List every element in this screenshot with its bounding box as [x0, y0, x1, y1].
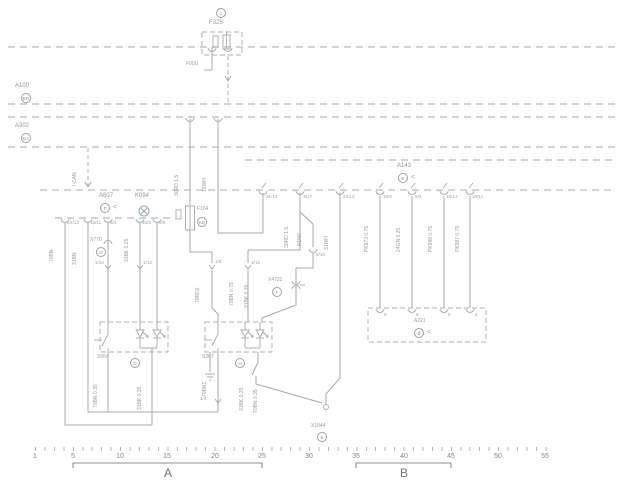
- pin-label: 6X/13: [67, 220, 79, 225]
- s267-label: S267: [202, 354, 214, 360]
- a221-badge: B: [414, 328, 424, 338]
- wire-label: 31BK 0.25: [124, 239, 131, 262]
- x1844-badge: B: [317, 432, 327, 442]
- ruler-number: 50: [494, 453, 502, 460]
- component-boxes: [100, 32, 486, 352]
- pin-label: 15/8: [383, 194, 392, 199]
- pin-label: 9: [416, 312, 419, 317]
- ruler-number: 25: [258, 453, 266, 460]
- a302-badge: BA: [21, 133, 31, 143]
- f325-badge: 1: [216, 8, 226, 18]
- k094-connector-icon: [139, 206, 149, 216]
- pin-label: 5/10: [316, 252, 325, 257]
- f325-symbol: [213, 31, 230, 49]
- x770-label: X770: [90, 237, 102, 243]
- x4722-badge: F: [272, 287, 282, 297]
- wire-label: PK973 0.75: [364, 226, 371, 252]
- ground-icon: [205, 374, 215, 380]
- pin-label: 15/11: [90, 220, 101, 225]
- pin-label: 1/10: [95, 260, 104, 265]
- x4722-label: X4722: [268, 277, 282, 283]
- pin-label: 10/11: [472, 194, 483, 199]
- pin-label: 23/12: [343, 194, 355, 199]
- a100-badge: BR: [21, 93, 31, 103]
- section-a-label: A: [164, 466, 172, 480]
- wire-label: 30RD 1.5: [284, 227, 291, 248]
- f164-badge: KB: [197, 217, 207, 227]
- ruler-number: 30: [305, 453, 313, 460]
- pointer-icon: <: [411, 174, 415, 181]
- a607-badge: F: [100, 203, 110, 213]
- wire-label: 31WH: [324, 236, 331, 250]
- wire-label: 31BK 0.35: [244, 285, 251, 308]
- s954-box: [100, 322, 168, 352]
- pin-label: 6/1: [110, 220, 116, 225]
- wire-label: 31BN: [72, 252, 79, 265]
- ruler-ticks: [35, 447, 550, 451]
- wire-label: 70BN: [49, 249, 56, 262]
- s267-internals: [204, 322, 268, 352]
- f164-fuse-symbol: [176, 206, 195, 230]
- wiring-diagram-page: 1 F325 F90U A100 BR A302 BA I-CAN A607 F…: [0, 0, 624, 488]
- wire-label: 24GN 0.25: [396, 228, 403, 252]
- k094-label: K094: [135, 193, 149, 200]
- wire-label: 31BK 0.35: [239, 388, 246, 411]
- a607-label: A607: [99, 193, 113, 200]
- ruler-number: 10: [116, 453, 124, 460]
- a302-label: A302: [15, 123, 29, 130]
- wire-label: PK988 0.75: [428, 226, 435, 252]
- s954-internals: [94, 322, 165, 352]
- wire-label: 30RD 1.5: [174, 175, 181, 196]
- s267-badge: H: [235, 358, 245, 368]
- wire-label: 70BN 0.35: [93, 384, 100, 408]
- x4722-connector-icon: [292, 281, 305, 289]
- pointer-icon: <: [427, 329, 431, 336]
- ruler-number: 55: [541, 453, 549, 460]
- arrow-glyphs: [85, 76, 251, 403]
- wire-label: 70BN 0.35: [253, 389, 260, 413]
- pointer-icon: <: [113, 204, 117, 211]
- pin-label: 1/8: [215, 259, 221, 264]
- ruler-number: 45: [447, 453, 455, 460]
- pin-label: 31/18: [266, 194, 278, 199]
- f164-label: F164: [197, 206, 208, 212]
- ican-label: I-CAN: [72, 172, 79, 186]
- a100-label: A100: [15, 83, 29, 90]
- pin-label: 1/4: [200, 396, 206, 401]
- x1844-connector-icon: [324, 405, 329, 410]
- pin-label: 6/5: [159, 220, 165, 225]
- a221-label: A221: [414, 318, 426, 324]
- wire-label: PK987 0.75: [455, 226, 462, 252]
- s954-label: S954: [97, 354, 109, 360]
- pin-label: 5: [448, 312, 451, 317]
- wire-label: 31BK 0.35: [137, 387, 144, 410]
- section-brackets: [73, 463, 451, 468]
- ruler-number: 15: [163, 453, 171, 460]
- ruler-number: 1: [33, 453, 37, 460]
- dashed-wires: [88, 56, 228, 187]
- ruler-number: 5: [71, 453, 75, 460]
- schematic-canvas: [0, 0, 624, 488]
- s954-badge: D: [130, 358, 140, 368]
- ruler-number: 20: [211, 453, 219, 460]
- wire-label: 16WH: [202, 178, 209, 192]
- pin-label: 8/4: [415, 194, 421, 199]
- f325-box: [202, 32, 242, 55]
- f325-label: F325: [209, 20, 223, 27]
- section-b-label: B: [400, 466, 408, 480]
- x1844-label: X1844: [311, 423, 325, 429]
- wire-label: 70BN1: [202, 382, 209, 397]
- pin-label: 1/12: [143, 260, 152, 265]
- pin-label: 4: [475, 312, 478, 317]
- a143-badge: E: [398, 173, 408, 183]
- s267-box: [205, 322, 272, 352]
- pin-label: 31/7: [303, 194, 312, 199]
- pin-label: 8: [384, 312, 387, 317]
- pin-label: 15/3: [142, 220, 151, 225]
- wire-label: RD90: [297, 233, 304, 246]
- pin-label: 10/13: [446, 194, 458, 199]
- ruler-number: 35: [352, 453, 360, 460]
- x770-badge: D: [96, 247, 106, 257]
- ruler-number: 40: [400, 453, 408, 460]
- f90u-label: F90U: [186, 61, 198, 67]
- wire-label: 70BN 0.75: [229, 282, 236, 306]
- pin-label: 1/12: [251, 260, 260, 265]
- wire-label: 70RD2: [195, 287, 202, 303]
- a143-label: A143: [397, 163, 411, 170]
